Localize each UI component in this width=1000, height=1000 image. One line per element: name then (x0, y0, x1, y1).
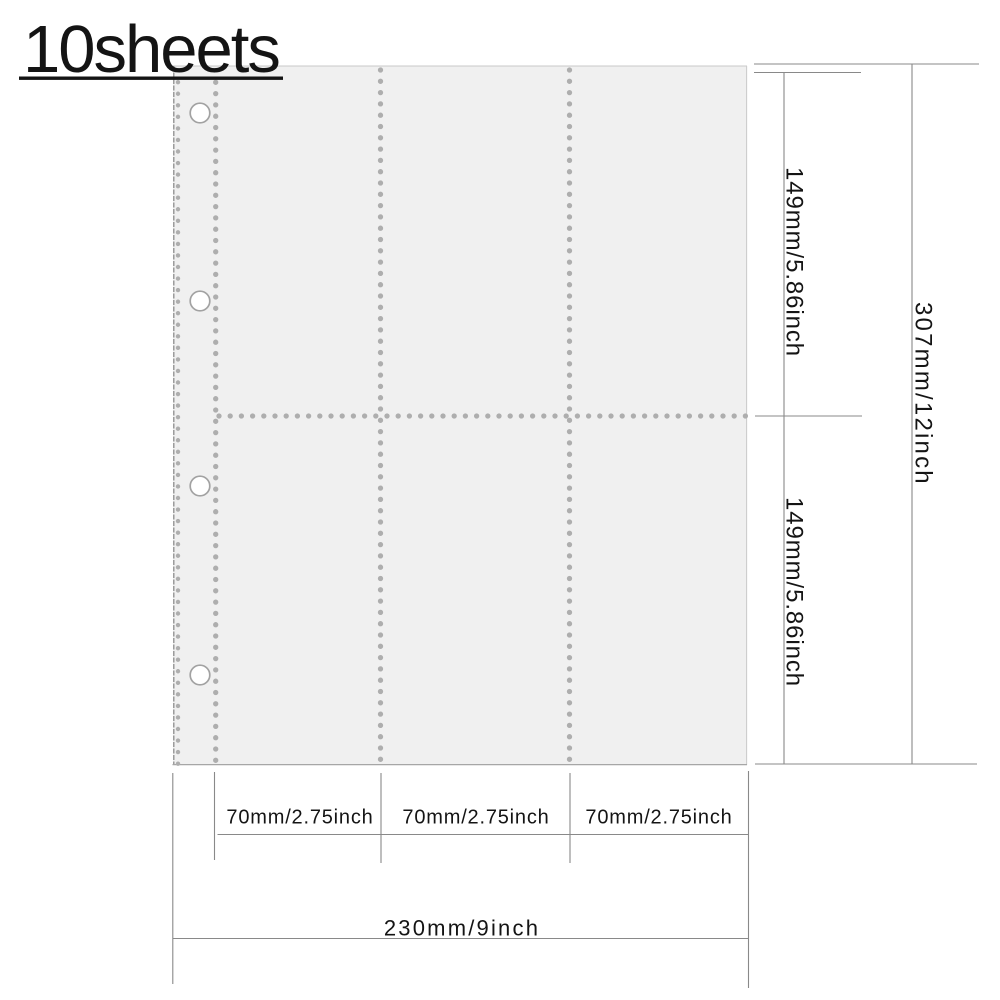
svg-text:230mm/9inch: 230mm/9inch (384, 916, 540, 941)
svg-text:149mm/5.86inch: 149mm/5.86inch (781, 497, 808, 687)
svg-text:10sheets: 10sheets (23, 12, 279, 87)
svg-text:70mm/2.75inch: 70mm/2.75inch (585, 807, 732, 829)
svg-text:149mm/5.86inch: 149mm/5.86inch (781, 167, 808, 357)
svg-text:307mm/12inch: 307mm/12inch (910, 302, 937, 486)
svg-text:70mm/2.75inch: 70mm/2.75inch (226, 807, 373, 829)
svg-text:70mm/2.75inch: 70mm/2.75inch (402, 807, 549, 829)
